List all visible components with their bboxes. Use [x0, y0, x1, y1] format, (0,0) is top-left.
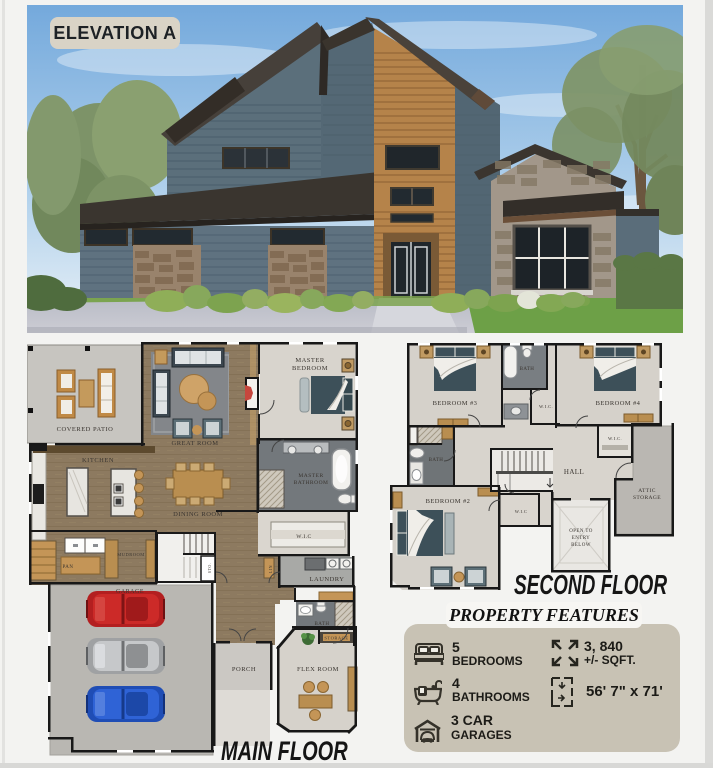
svg-text:PAN: PAN — [62, 565, 73, 570]
svg-text:PORCH: PORCH — [232, 666, 256, 673]
svg-text:W.I.C: W.I.C — [515, 509, 528, 514]
svg-text:W.I.C.: W.I.C. — [539, 404, 553, 409]
svg-text:GARAGE: GARAGE — [116, 589, 144, 595]
svg-text:BATHROOM: BATHROOM — [294, 480, 329, 486]
svg-text:BATH: BATH — [429, 458, 444, 463]
svg-text:BEDROOM #4: BEDROOM #4 — [596, 400, 641, 407]
svg-text:KITCHEN: KITCHEN — [82, 457, 114, 464]
svg-text:BEDROOM #3: BEDROOM #3 — [433, 400, 478, 407]
svg-text:BEDROOM: BEDROOM — [292, 365, 328, 372]
svg-text:ATTIC: ATTIC — [638, 488, 656, 494]
svg-text:BEDROOM #2: BEDROOM #2 — [426, 498, 471, 505]
svg-text:DINING ROOM: DINING ROOM — [173, 511, 223, 518]
svg-text:W.I.C.: W.I.C. — [608, 436, 622, 441]
svg-text:BELOW: BELOW — [571, 543, 591, 548]
svg-text:OPEN TO: OPEN TO — [569, 529, 593, 534]
svg-text:MUDROOM: MUDROOM — [117, 552, 145, 557]
svg-text:GREAT ROOM: GREAT ROOM — [172, 440, 219, 447]
svg-text:COVERED PATIO: COVERED PATIO — [57, 426, 114, 433]
svg-text:BATH: BATH — [520, 367, 535, 372]
svg-text:STO.: STO. — [207, 563, 212, 573]
svg-text:MASTER: MASTER — [295, 357, 325, 364]
svg-text:MASTER: MASTER — [298, 473, 323, 479]
svg-text:STORAGE: STORAGE — [633, 495, 661, 501]
svg-text:ENTRY: ENTRY — [572, 536, 590, 541]
svg-text:LAUNDRY: LAUNDRY — [310, 576, 345, 583]
svg-text:LIN: LIN — [268, 565, 273, 573]
svg-text:FLEX ROOM: FLEX ROOM — [297, 666, 339, 673]
svg-text:HALL: HALL — [564, 468, 584, 476]
svg-text:W.I.C: W.I.C — [296, 534, 311, 540]
